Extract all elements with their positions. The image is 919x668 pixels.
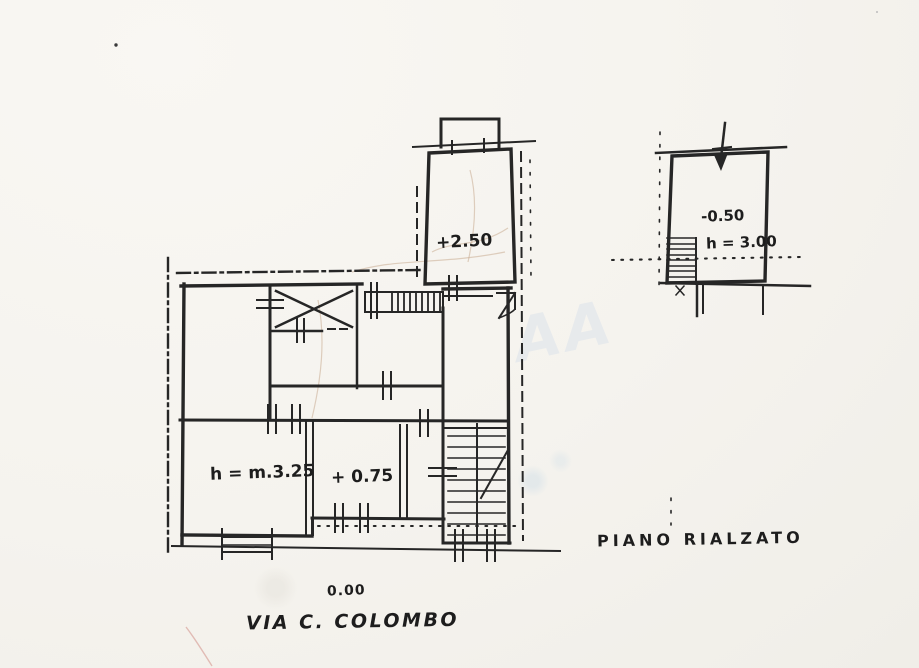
label-room-height: h = m.3.25 [210,461,315,485]
label-annex-level: -0.50 [701,206,745,225]
annex-staircase [667,238,696,282]
floor-plan-drawing: AA +2.50 [0,0,919,668]
scanned-floor-plan-page: AA +2.50 [0,0,919,668]
label-floor-name: PIANO RIALZATO [597,528,804,551]
street-line [172,546,560,551]
label-upper-room-level: +2.50 [436,230,493,253]
label-annex-height: h = 3.00 [706,232,777,252]
label-mid-level: + 0.75 [331,466,394,488]
label-street-level: 0.00 [327,582,366,599]
boundary-dashdot-lines [168,258,420,553]
adjacent-dashed-line [521,152,523,540]
label-street-name: VIA C. COLOMBO [246,609,459,635]
cross-void-marker [276,291,352,327]
scan-artifacts [114,11,878,666]
window-bottom-left [222,529,272,559]
